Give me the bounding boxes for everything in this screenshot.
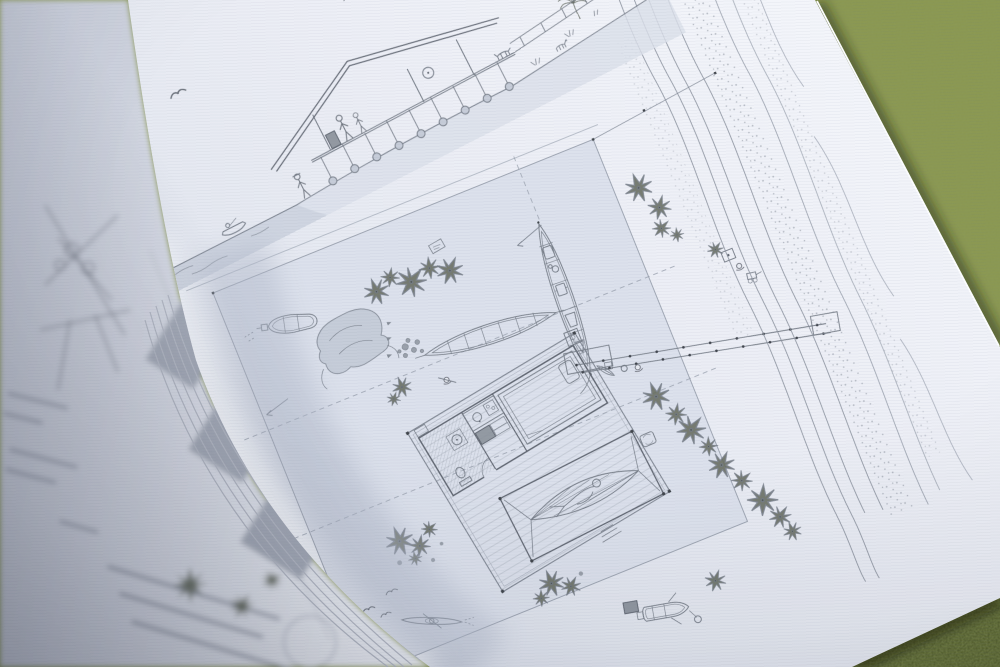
book-photo-svg — [0, 0, 1000, 667]
photo-of-open-book — [0, 0, 1000, 667]
